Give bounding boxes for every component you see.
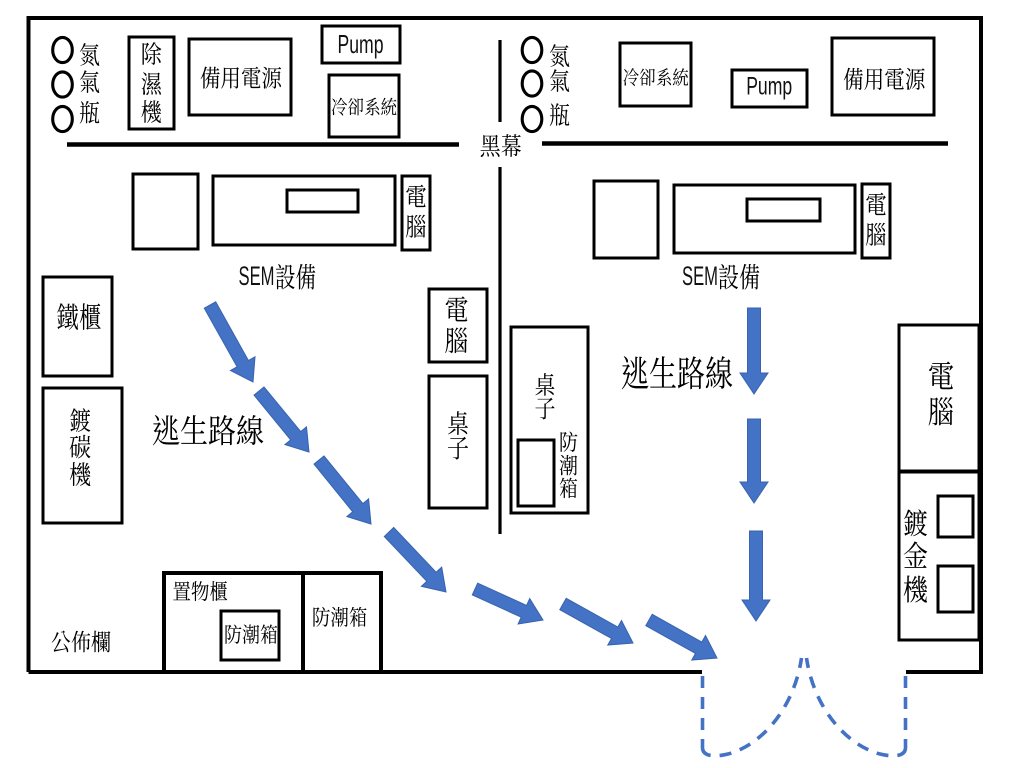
svg-text:Pump: Pump bbox=[338, 29, 384, 59]
svg-text:Pump: Pump bbox=[746, 73, 792, 101]
svg-text:SEM: SEM bbox=[682, 261, 718, 291]
svg-text:SEM: SEM bbox=[239, 261, 275, 291]
